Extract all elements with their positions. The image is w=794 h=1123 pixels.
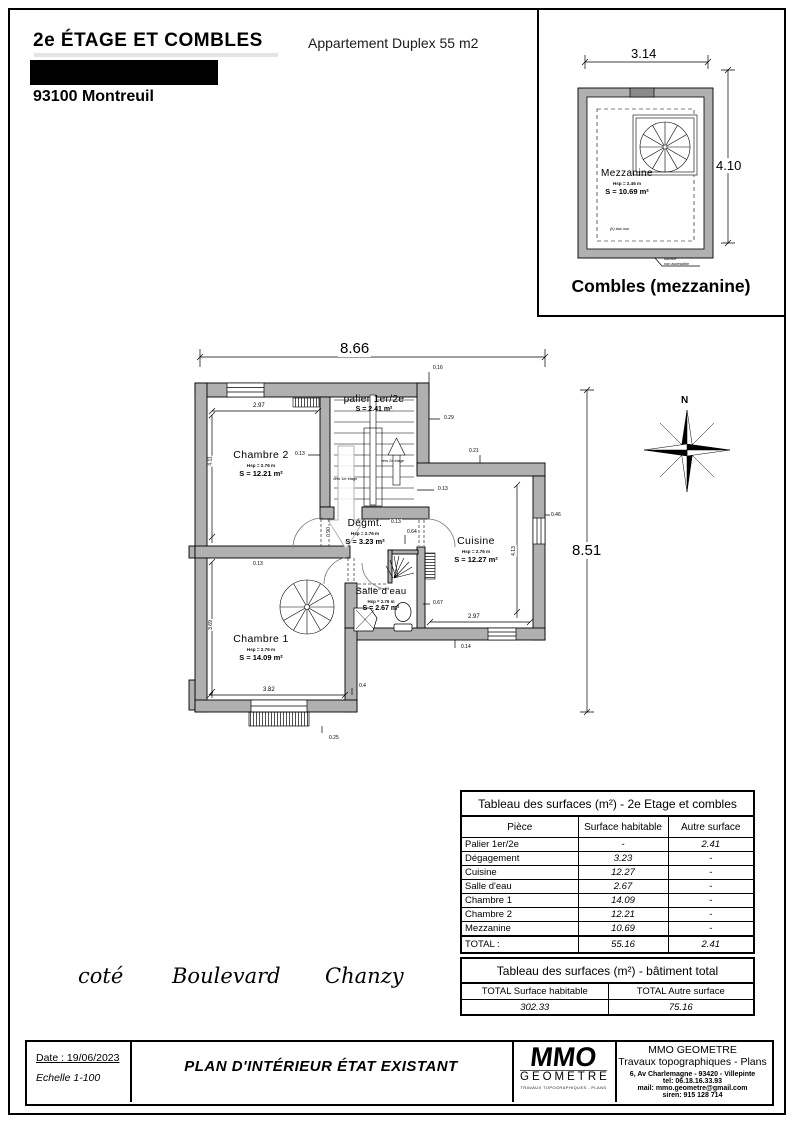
cell-hab: 3.23 <box>578 852 668 866</box>
dim-label: 0.25 <box>328 735 340 741</box>
dim-label: 0.90 <box>326 526 332 538</box>
cell-autre: - <box>668 894 754 908</box>
cell-autre: - <box>668 866 754 880</box>
street-caption-cote: coté <box>78 964 123 988</box>
table-header-row: Pièce Surface habitable Autre surface <box>461 816 754 838</box>
room-height: Hsp = 2.76 m <box>247 647 275 652</box>
room-surface: S = 12.27 m² <box>454 555 498 564</box>
cell-hab: 14.09 <box>578 894 668 908</box>
surfaces-table-title: Tableau des surfaces (m²) - 2e Etage et … <box>461 791 754 816</box>
dim-label: 0.21 <box>468 448 480 454</box>
room-salle-eau: Salle d'eau Hsp = 2.76 m S = 2.67 m² <box>339 586 423 612</box>
city-label: 93100 Montreuil <box>33 88 154 106</box>
cell-autre: - <box>668 922 754 937</box>
room-surface: S = 2.41 m² <box>356 406 393 413</box>
room-height: Hsp = 2.76 m <box>247 463 275 468</box>
dim-label: 2.97 <box>252 403 266 409</box>
room-height: Hsp = 2.76 m <box>368 599 395 604</box>
table-row: Chambre 1 14.09 - <box>461 894 754 908</box>
table-row: 302.33 75.16 <box>461 1000 754 1016</box>
overall-height-dim: 8.51 <box>570 542 603 559</box>
north-compass-icon <box>644 410 730 492</box>
dim-label: 0.46 <box>550 512 562 518</box>
table-row: Chambre 2 12.21 - <box>461 908 754 922</box>
company-info: MMO GEOMETRE Travaux topographiques - Pl… <box>617 1044 768 1099</box>
spiral-staircase <box>280 580 334 634</box>
dim-label: 2.97 <box>467 614 481 620</box>
room-height: Hsp = 2.76 m <box>462 549 490 554</box>
col-total-hab: TOTAL Surface habitable <box>461 983 608 1000</box>
dim-label: 0.14 <box>460 644 472 650</box>
drawing-title: PLAN D'INTÉRIEUR ÉTAT EXISTANT <box>132 1058 510 1075</box>
cell-piece: Chambre 2 <box>461 908 578 922</box>
date-label: Date : 19/06/2023 <box>36 1052 119 1064</box>
dim-label: 4.13 <box>511 545 517 557</box>
dim-label: 0.64 <box>406 529 418 535</box>
company-tel: tel: 06.18.16.33.93 <box>617 1078 768 1085</box>
scale-label: Echelle 1-100 <box>36 1072 100 1084</box>
cell-hab: 2.67 <box>578 880 668 894</box>
table-total-row: TOTAL : 55.16 2.41 <box>461 936 754 953</box>
company-siren: siren: 915 128 714 <box>617 1092 768 1099</box>
col-autre: Autre surface <box>668 816 754 838</box>
street-caption-chanzy: Chanzy <box>325 964 404 988</box>
dim-label: 3.69 <box>208 619 214 631</box>
mezzanine-leader-note-1: surface <box>664 257 676 261</box>
dim-label: 0.4 <box>358 683 367 689</box>
room-surface: S = 2.67 m² <box>363 605 400 612</box>
plan-sheet: 2e ÉTAGE ET COMBLES Appartement Duplex 5… <box>0 0 794 1123</box>
dim-label: 0.13 <box>294 451 306 457</box>
cell-hab: 12.21 <box>578 908 668 922</box>
room-height: Hsp = 2.76 m <box>351 531 379 536</box>
room-name: palier 1er/2e <box>344 394 405 405</box>
cell-total-hab: 302.33 <box>461 1000 608 1016</box>
col-piece: Pièce <box>461 816 578 838</box>
dim-label: 4.11 <box>208 455 214 466</box>
cell-autre: - <box>668 880 754 894</box>
room-name: Salle d'eau <box>355 586 406 597</box>
cell-piece: Dégagement <box>461 852 578 866</box>
room-surface: S = 10.69 m² <box>605 187 649 196</box>
cell-piece: Chambre 1 <box>461 894 578 908</box>
logo-text: MMO <box>513 1044 615 1070</box>
room-height: Hsp = 2.46 m <box>613 181 641 186</box>
total-label: TOTAL : <box>461 936 578 953</box>
stair-down-label: vers 1er étage <box>333 477 369 481</box>
dim-label: 0.13 <box>252 561 264 567</box>
title-underline-shadow <box>34 53 278 57</box>
cell-hab: - <box>578 838 668 852</box>
table-row: Salle d'eau 2.67 - <box>461 880 754 894</box>
room-cuisine: Cuisine Hsp = 2.76 m S = 12.27 m² <box>430 535 522 564</box>
dim-label: 0.16 <box>432 365 444 371</box>
dim-label: 3.82 <box>262 687 276 693</box>
dim-label: 0.29 <box>443 415 455 421</box>
room-name: Chambre 2 <box>233 449 289 461</box>
room-degagement: Dégmt. Hsp = 2.76 m S = 3.23 m² <box>332 518 398 546</box>
mezzanine-low-wall-note: (h) bas mur <box>610 227 629 231</box>
company-name: MMO GEOMETRE <box>617 1044 768 1056</box>
redacted-address-bar <box>30 60 218 85</box>
logo-tagline: TRAVAUX TOPOGRAPHIQUES - PLANS <box>514 1085 613 1090</box>
room-palier: palier 1er/2e S = 2.41 m² <box>330 394 418 413</box>
cell-hab: 10.69 <box>578 922 668 937</box>
mezzanine-width-dim: 3.14 <box>629 46 658 61</box>
mezzanine-spiral-stair <box>633 115 697 175</box>
stair-up-label: vers 2e étage <box>381 459 417 463</box>
cell-piece: Mezzanine <box>461 922 578 937</box>
page-subtitle: Appartement Duplex 55 m2 <box>308 35 478 51</box>
room-name: Cuisine <box>457 535 495 547</box>
total-autre: 2.41 <box>668 936 754 953</box>
cell-total-autre: 75.16 <box>608 1000 754 1016</box>
table-row: Dégagement 3.23 - <box>461 852 754 866</box>
north-label: N <box>681 395 688 406</box>
dim-label: 0.13 <box>390 519 402 525</box>
overall-width-dim: 8.66 <box>338 340 371 357</box>
cell-autre: 2.41 <box>668 838 754 852</box>
mezzanine-height-dim: 4.10 <box>714 158 743 173</box>
total-hab: 55.16 <box>578 936 668 953</box>
room-chambre-1: Chambre 1 Hsp = 2.76 m S = 14.09 m² <box>215 633 307 662</box>
dim-label: 0.13 <box>437 486 449 492</box>
cell-piece: Salle d'eau <box>461 880 578 894</box>
page-title: 2e ÉTAGE ET COMBLES <box>33 30 263 52</box>
room-surface: S = 3.23 m² <box>345 537 384 546</box>
col-total-autre: TOTAL Autre surface <box>608 983 754 1000</box>
cell-piece: Cuisine <box>461 866 578 880</box>
room-name: Chambre 1 <box>233 633 289 645</box>
room-surface: S = 12.21 m² <box>239 469 283 478</box>
cell-hab: 12.27 <box>578 866 668 880</box>
room-mezzanine: Mezzanine Hsp = 2.46 m S = 10.69 m² <box>593 168 661 196</box>
cell-autre: - <box>668 852 754 866</box>
table-header-row: TOTAL Surface habitable TOTAL Autre surf… <box>461 983 754 1000</box>
room-name: Dégmt. <box>348 518 383 529</box>
company-logo: MMO GEOMETRE TRAVAUX TOPOGRAPHIQUES - PL… <box>514 1044 613 1090</box>
company-activity: Travaux topographiques - Plans <box>617 1056 768 1068</box>
dim-label: 0.67 <box>432 600 444 606</box>
street-caption-boulevard: Boulevard <box>172 964 281 988</box>
mezzanine-roof-window <box>630 88 654 97</box>
mezzanine-leader-note-2: non accessible <box>664 262 689 266</box>
company-mail: mail: mmo.geometre@gmail.com <box>617 1085 768 1092</box>
cell-piece: Palier 1er/2e <box>461 838 578 852</box>
room-surface: S = 14.09 m² <box>239 653 283 662</box>
table-row: Palier 1er/2e - 2.41 <box>461 838 754 852</box>
combles-caption: Combles (mezzanine) <box>540 276 782 297</box>
surfaces-table: Tableau des surfaces (m²) - 2e Etage et … <box>460 790 755 954</box>
table-row: Mezzanine 10.69 - <box>461 922 754 937</box>
table-row: Cuisine 12.27 - <box>461 866 754 880</box>
room-name: Mezzanine <box>601 168 653 179</box>
company-address: 6, Av Charlemagne - 93420 - Villepinte <box>617 1071 768 1078</box>
col-habitable: Surface habitable <box>578 816 668 838</box>
building-total-table: Tableau des surfaces (m²) - bâtiment tot… <box>460 957 755 1016</box>
cell-autre: - <box>668 908 754 922</box>
building-table-title: Tableau des surfaces (m²) - bâtiment tot… <box>461 958 754 983</box>
floor-plan-drawing <box>0 0 794 1123</box>
